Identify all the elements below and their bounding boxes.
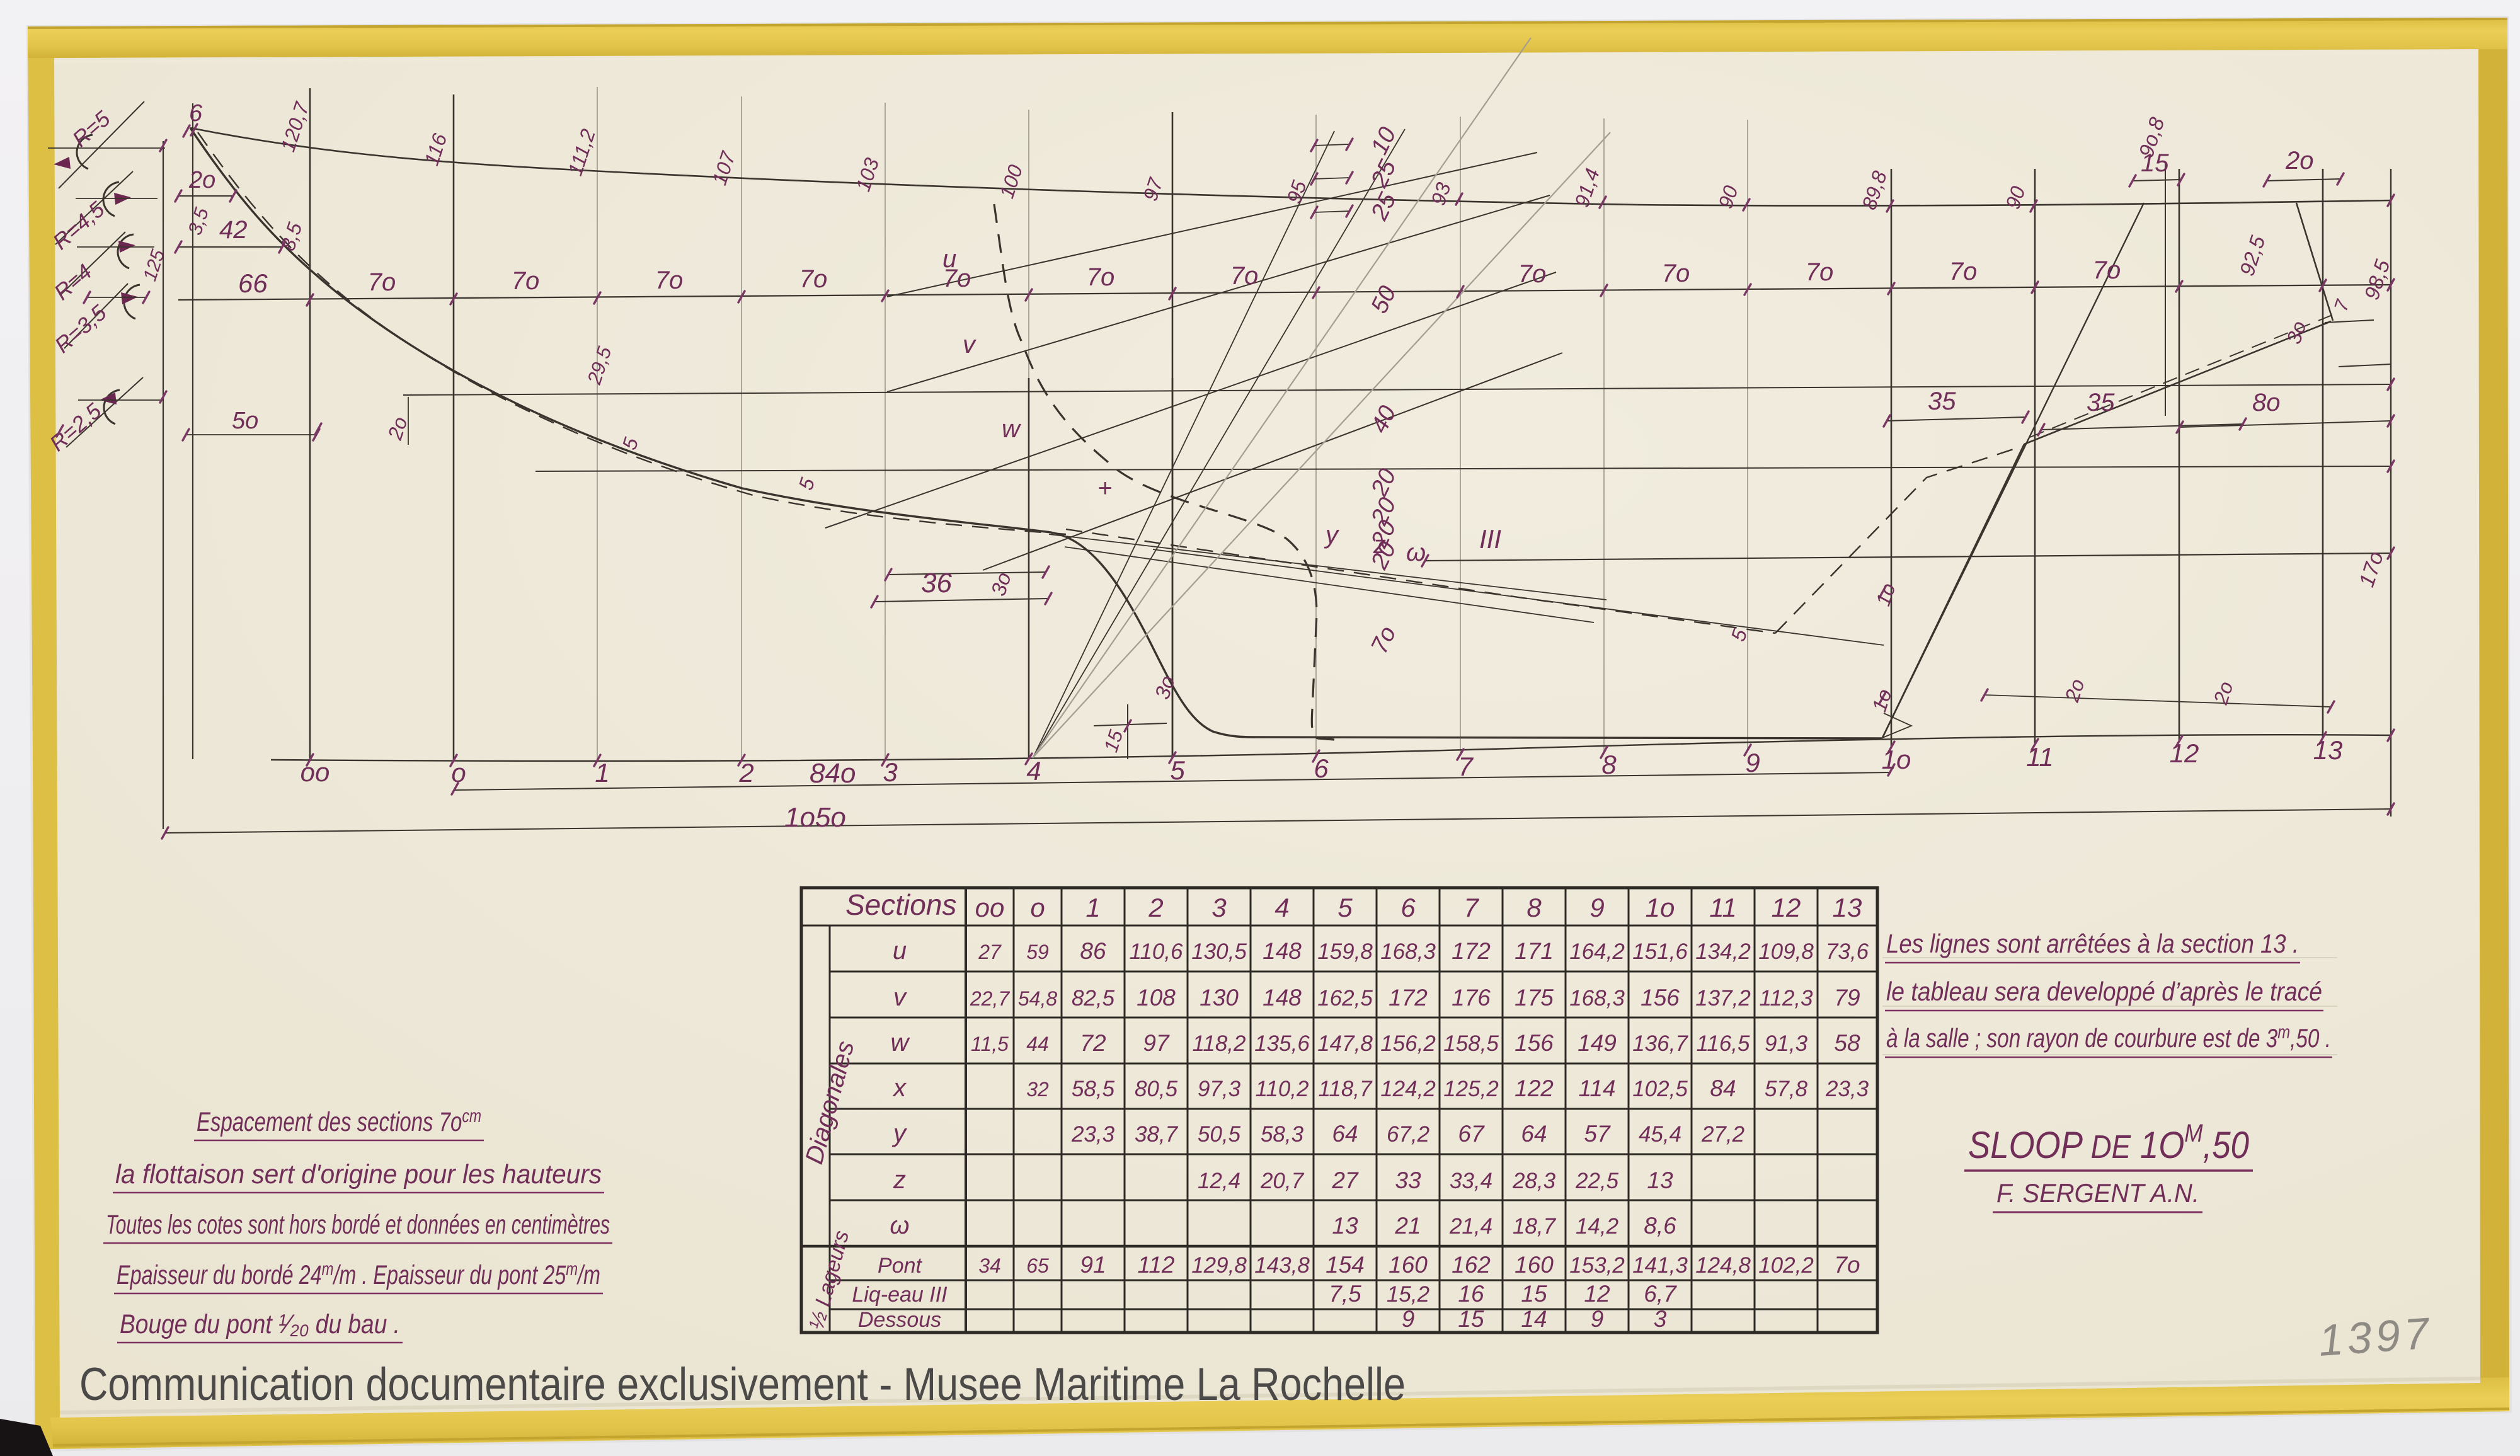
svg-text:33: 33 [1395,1167,1421,1193]
svg-text:1: 1 [1085,893,1100,922]
svg-text:130,5: 130,5 [1191,939,1247,964]
svg-text:Sections: Sections [845,888,956,921]
svg-text:59: 59 [1026,941,1049,963]
svg-text:Espacement des sections 7ocm: Espacement des sections 7ocm [197,1106,481,1137]
svg-text:12: 12 [2170,738,2199,768]
svg-text:130: 130 [1200,985,1239,1011]
svg-text:7o: 7o [1662,260,1690,287]
svg-text:108: 108 [1137,985,1176,1011]
svg-text:64: 64 [1521,1121,1547,1147]
svg-text:w: w [891,1029,911,1057]
svg-text:5: 5 [1337,893,1353,922]
svg-text:134,2: 134,2 [1695,939,1751,964]
svg-text:72: 72 [1080,1030,1106,1056]
svg-text:57,8: 57,8 [1765,1077,1808,1101]
svg-text:III: III [1479,524,1501,554]
svg-text:13: 13 [2313,735,2343,765]
svg-text:15,2: 15,2 [1387,1282,1429,1307]
svg-text:16: 16 [1458,1281,1484,1307]
svg-text:o: o [1030,893,1045,922]
svg-text:86: 86 [1080,938,1106,964]
svg-text:8: 8 [1601,750,1617,779]
svg-text:172: 172 [1389,985,1428,1011]
svg-text:91,3: 91,3 [1765,1031,1808,1056]
svg-text:164,2: 164,2 [1569,939,1625,964]
svg-text:+: + [1097,474,1112,502]
svg-text:z: z [1373,531,1386,559]
svg-text:84o: 84o [810,758,856,789]
svg-text:22,7: 22,7 [970,987,1010,1010]
svg-text:18,7: 18,7 [1513,1214,1557,1239]
svg-text:22,5: 22,5 [1575,1169,1619,1193]
svg-text:118,2: 118,2 [1193,1031,1246,1056]
svg-text:153,2: 153,2 [1569,1253,1625,1278]
svg-text:58,5: 58,5 [1072,1077,1115,1101]
svg-text:6: 6 [1400,893,1416,922]
svg-text:oo: oo [975,893,1005,922]
svg-text:137,2: 137,2 [1695,986,1751,1011]
svg-text:147,8: 147,8 [1317,1031,1373,1056]
svg-text:9: 9 [1591,1306,1604,1332]
svg-text:Epaisseur du bordé 24m/m . Ep: Epaisseur du bordé 24m/m . Epaisseur du … [117,1259,600,1290]
svg-text:136,7: 136,7 [1632,1031,1688,1056]
svg-text:112,3: 112,3 [1760,986,1814,1011]
svg-text:15: 15 [1521,1281,1547,1307]
svg-text:13: 13 [1332,1213,1358,1239]
svg-text:15: 15 [2141,149,2169,177]
svg-text:v: v [893,983,907,1011]
svg-text:80,5: 80,5 [1135,1077,1178,1101]
svg-text:1o: 1o [1646,893,1675,922]
svg-text:67,2: 67,2 [1387,1122,1429,1147]
svg-text:x: x [892,1074,907,1102]
svg-text:5: 5 [1170,755,1185,785]
svg-text:21: 21 [1394,1213,1421,1239]
svg-text:7o: 7o [655,267,684,294]
svg-text:156: 156 [1641,985,1680,1011]
svg-text:110,2: 110,2 [1256,1077,1309,1101]
svg-text:27: 27 [978,941,1002,963]
svg-text:8,6: 8,6 [1644,1213,1676,1239]
svg-text:Bouge du pont ¹⁄₂₀ du bau .: Bouge du pont ¹⁄₂₀ du bau . [120,1309,400,1339]
svg-text:7: 7 [1458,752,1474,781]
svg-text:15: 15 [1458,1306,1484,1332]
svg-text:168,3: 168,3 [1380,939,1436,964]
svg-text:o: o [451,758,466,788]
svg-text:27: 27 [1331,1167,1359,1193]
svg-text:7,5: 7,5 [1329,1281,1361,1307]
svg-text:7o: 7o [2093,256,2121,284]
svg-text:4: 4 [1274,893,1289,922]
svg-text:58,3: 58,3 [1261,1122,1304,1147]
svg-text:84: 84 [1710,1075,1736,1101]
svg-text:34: 34 [978,1254,1001,1277]
svg-text:54,8: 54,8 [1018,987,1057,1010]
svg-text:1o: 1o [1882,745,1911,774]
svg-text:5o: 5o [232,408,258,434]
svg-text:Toutes les cotes sont hors bor: Toutes les cotes sont hors bordé et donn… [106,1210,610,1240]
svg-text:ω: ω [890,1212,909,1239]
svg-text:82,5: 82,5 [1072,986,1115,1011]
svg-text:67: 67 [1458,1121,1485,1147]
svg-text:la flottaison sert d'origine p: la flottaison sert d'origine pour les ha… [115,1159,602,1189]
svg-text:162,5: 162,5 [1317,986,1373,1011]
svg-text:F. SERGENT A.N.: F. SERGENT A.N. [1996,1178,2199,1208]
svg-text:4: 4 [1026,756,1041,786]
svg-text:1: 1 [595,758,609,788]
svg-text:7o: 7o [1087,263,1115,291]
svg-text:141,3: 141,3 [1632,1253,1688,1278]
svg-text:148: 148 [1263,938,1302,964]
svg-text:2: 2 [738,758,753,788]
svg-text:79: 79 [1834,985,1860,1011]
svg-text:160: 160 [1389,1252,1428,1278]
svg-text:7o: 7o [1230,262,1259,290]
svg-text:112: 112 [1138,1252,1175,1278]
svg-text:20,7: 20,7 [1260,1169,1305,1193]
svg-text:159,8: 159,8 [1317,939,1373,964]
svg-text:2o: 2o [188,167,215,193]
svg-text:45,4: 45,4 [1639,1122,1681,1147]
svg-text:116,5: 116,5 [1697,1031,1751,1056]
svg-text:162: 162 [1452,1252,1491,1278]
svg-text:7: 7 [1463,893,1479,922]
svg-text:8: 8 [1526,893,1542,922]
svg-text:3: 3 [1654,1306,1667,1332]
svg-text:7o: 7o [512,267,540,295]
svg-text:7o: 7o [1834,1252,1860,1278]
svg-text:97: 97 [1143,1030,1170,1056]
svg-text:102,2: 102,2 [1758,1253,1814,1278]
svg-text:9: 9 [1402,1306,1415,1332]
svg-text:64: 64 [1332,1121,1358,1147]
svg-text:7o: 7o [1949,258,1978,285]
svg-text:58: 58 [1834,1030,1860,1056]
svg-text:Dessous: Dessous [858,1308,941,1332]
svg-text:13: 13 [1833,893,1862,922]
svg-text:21,4: 21,4 [1449,1214,1492,1239]
svg-text:109,8: 109,8 [1758,939,1814,964]
svg-text:50,5: 50,5 [1198,1122,1241,1147]
svg-text:65: 65 [1026,1254,1049,1277]
svg-text:3: 3 [883,757,897,787]
svg-text:ω: ω [1406,539,1426,566]
svg-text:à la salle ; son rayon de cou: à la salle ; son rayon de courbure est d… [1886,1022,2331,1053]
svg-text:97,3: 97,3 [1198,1077,1241,1101]
svg-text:172: 172 [1452,938,1491,964]
svg-text:35: 35 [2087,389,2115,416]
svg-text:42: 42 [219,216,248,244]
svg-text:y: y [1324,521,1340,549]
svg-text:129,8: 129,8 [1191,1253,1247,1278]
svg-text:6: 6 [1314,754,1329,783]
svg-text:124,2: 124,2 [1380,1077,1436,1101]
svg-text:y: y [891,1120,908,1147]
svg-text:9: 9 [1745,748,1760,777]
svg-text:27,2: 27,2 [1701,1122,1744,1147]
svg-text:7o: 7o [1518,260,1547,288]
svg-text:102,5: 102,5 [1632,1077,1688,1101]
svg-text:Communication documentaire exc: Communication documentaire exclusivement… [79,1359,1406,1410]
svg-text:9: 9 [1589,893,1604,922]
svg-text:2o: 2o [2285,147,2314,175]
svg-text:33,4: 33,4 [1450,1169,1492,1193]
svg-text:158,5: 158,5 [1443,1031,1499,1056]
svg-text:oo: oo [301,757,330,787]
svg-text:6: 6 [189,100,203,127]
svg-text:44: 44 [1026,1033,1049,1055]
svg-text:148: 148 [1263,985,1302,1011]
svg-text:11,5: 11,5 [971,1033,1009,1055]
svg-text:73,6: 73,6 [1826,939,1869,964]
svg-text:1o5o: 1o5o [784,802,846,833]
svg-text:u: u [942,245,956,273]
svg-text:14: 14 [1521,1306,1547,1332]
svg-text:124,8: 124,8 [1695,1253,1751,1278]
svg-text:91: 91 [1080,1252,1106,1278]
svg-text:28,3: 28,3 [1512,1169,1556,1193]
svg-text:z: z [893,1166,906,1194]
svg-text:35: 35 [1928,387,1956,415]
svg-text:122: 122 [1515,1075,1554,1101]
svg-text:38,7: 38,7 [1135,1122,1179,1147]
svg-text:135,6: 135,6 [1254,1031,1310,1056]
svg-text:7o: 7o [799,265,828,293]
svg-text:149: 149 [1578,1030,1617,1056]
svg-text:13: 13 [1647,1167,1673,1193]
svg-text:36: 36 [921,568,952,599]
svg-text:le tableau sera developpé d’ap: le tableau sera developpé d’après le tra… [1886,977,2322,1006]
svg-text:168,3: 168,3 [1569,986,1625,1011]
svg-text:23,3: 23,3 [1825,1077,1869,1101]
svg-text:u: u [893,937,907,965]
svg-text:160: 160 [1515,1252,1554,1278]
svg-text:3: 3 [1211,893,1226,922]
svg-text:156,2: 156,2 [1380,1031,1436,1056]
svg-text:32: 32 [1026,1078,1049,1101]
svg-text:8o: 8o [2252,389,2281,416]
svg-text:Pont: Pont [878,1254,922,1278]
svg-text:175: 175 [1515,985,1554,1011]
svg-text:143,8: 143,8 [1254,1253,1310,1278]
svg-text:23,3: 23,3 [1071,1122,1115,1147]
svg-text:6,7: 6,7 [1644,1281,1677,1307]
svg-text:12: 12 [1584,1281,1610,1307]
svg-text:11: 11 [1709,893,1737,922]
svg-text:57: 57 [1584,1121,1611,1147]
svg-text:Les lignes sont arrêtées à la: Les lignes sont arrêtées à la section 13… [1886,929,2299,958]
svg-text:12,4: 12,4 [1198,1169,1240,1193]
svg-text:154: 154 [1326,1252,1365,1278]
svg-text:7o: 7o [368,268,396,296]
svg-text:110,6: 110,6 [1130,939,1184,964]
svg-text:114: 114 [1579,1075,1616,1101]
svg-text:151,6: 151,6 [1632,939,1688,964]
svg-text:v: v [963,331,976,358]
svg-text:14,2: 14,2 [1576,1214,1618,1239]
svg-text:66: 66 [238,268,268,298]
svg-text:11: 11 [2026,742,2054,772]
svg-text:156: 156 [1515,1030,1554,1056]
svg-text:118,7: 118,7 [1319,1077,1373,1101]
svg-text:125,2: 125,2 [1443,1077,1499,1101]
svg-text:w: w [1002,415,1022,443]
svg-text:Liq-eau III: Liq-eau III [852,1283,948,1307]
svg-text:2: 2 [1148,893,1163,922]
svg-text:171: 171 [1515,938,1554,964]
svg-text:176: 176 [1452,985,1491,1011]
svg-text:7o: 7o [1806,258,1834,286]
svg-text:12: 12 [1772,893,1801,922]
